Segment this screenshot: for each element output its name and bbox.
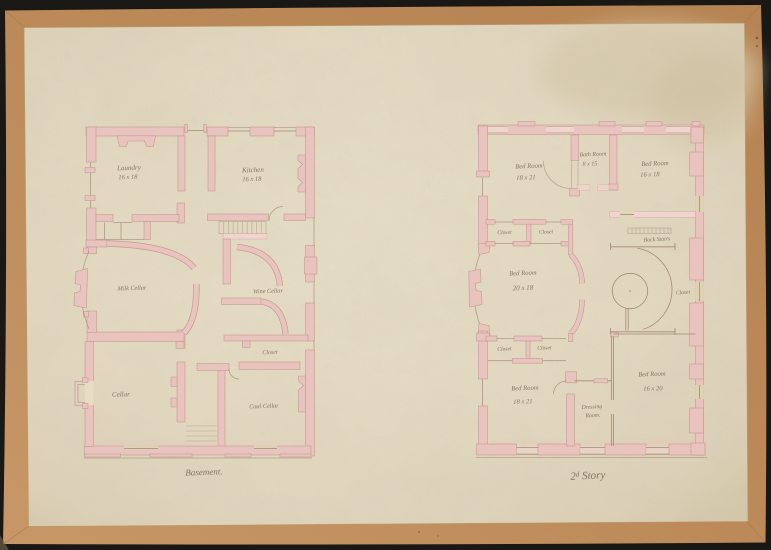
svg-text:Closet: Closet <box>497 230 512 237</box>
svg-text:Coal Cellar: Coal Cellar <box>249 402 279 410</box>
svg-text:18 x 21: 18 x 21 <box>513 398 533 406</box>
svg-text:Laundry: Laundry <box>116 164 142 173</box>
svg-text:Dressing: Dressing <box>580 404 602 411</box>
svg-text:Closet: Closet <box>497 346 512 353</box>
svg-text:8 x 15: 8 x 15 <box>583 161 598 168</box>
svg-text:Closet: Closet <box>539 229 554 236</box>
svg-text:Bed Room: Bed Room <box>515 163 543 171</box>
svg-text:Cellar: Cellar <box>112 390 130 399</box>
svg-text:Closet: Closet <box>537 345 552 352</box>
svg-text:16 x 18: 16 x 18 <box>640 171 660 179</box>
svg-text:16 x 18: 16 x 18 <box>118 174 138 182</box>
svg-text:Closet: Closet <box>262 350 278 357</box>
svg-text:Bath Room: Bath Room <box>579 152 607 159</box>
svg-text:Wine Cellar: Wine Cellar <box>253 287 284 295</box>
svg-text:16 x 18: 16 x 18 <box>242 176 262 184</box>
svg-text:2d Story: 2d Story <box>570 469 606 483</box>
svg-text:Bed Room: Bed Room <box>509 270 537 278</box>
svg-text:Bed Room: Bed Room <box>638 371 666 379</box>
svg-text:Bed Room: Bed Room <box>511 385 539 393</box>
svg-text:Basement.: Basement. <box>185 466 223 477</box>
svg-text:Milk Cellar: Milk Cellar <box>116 284 147 292</box>
svg-text:Bed Room: Bed Room <box>641 160 669 168</box>
svg-text:20 x 18: 20 x 18 <box>512 284 533 293</box>
svg-text:Room.: Room. <box>584 413 600 420</box>
svg-text:18 x 21: 18 x 21 <box>516 174 536 182</box>
svg-text:16 x 20: 16 x 20 <box>643 385 663 393</box>
svg-text:Kitchen: Kitchen <box>241 166 265 175</box>
svg-text:Closet: Closet <box>676 289 691 296</box>
